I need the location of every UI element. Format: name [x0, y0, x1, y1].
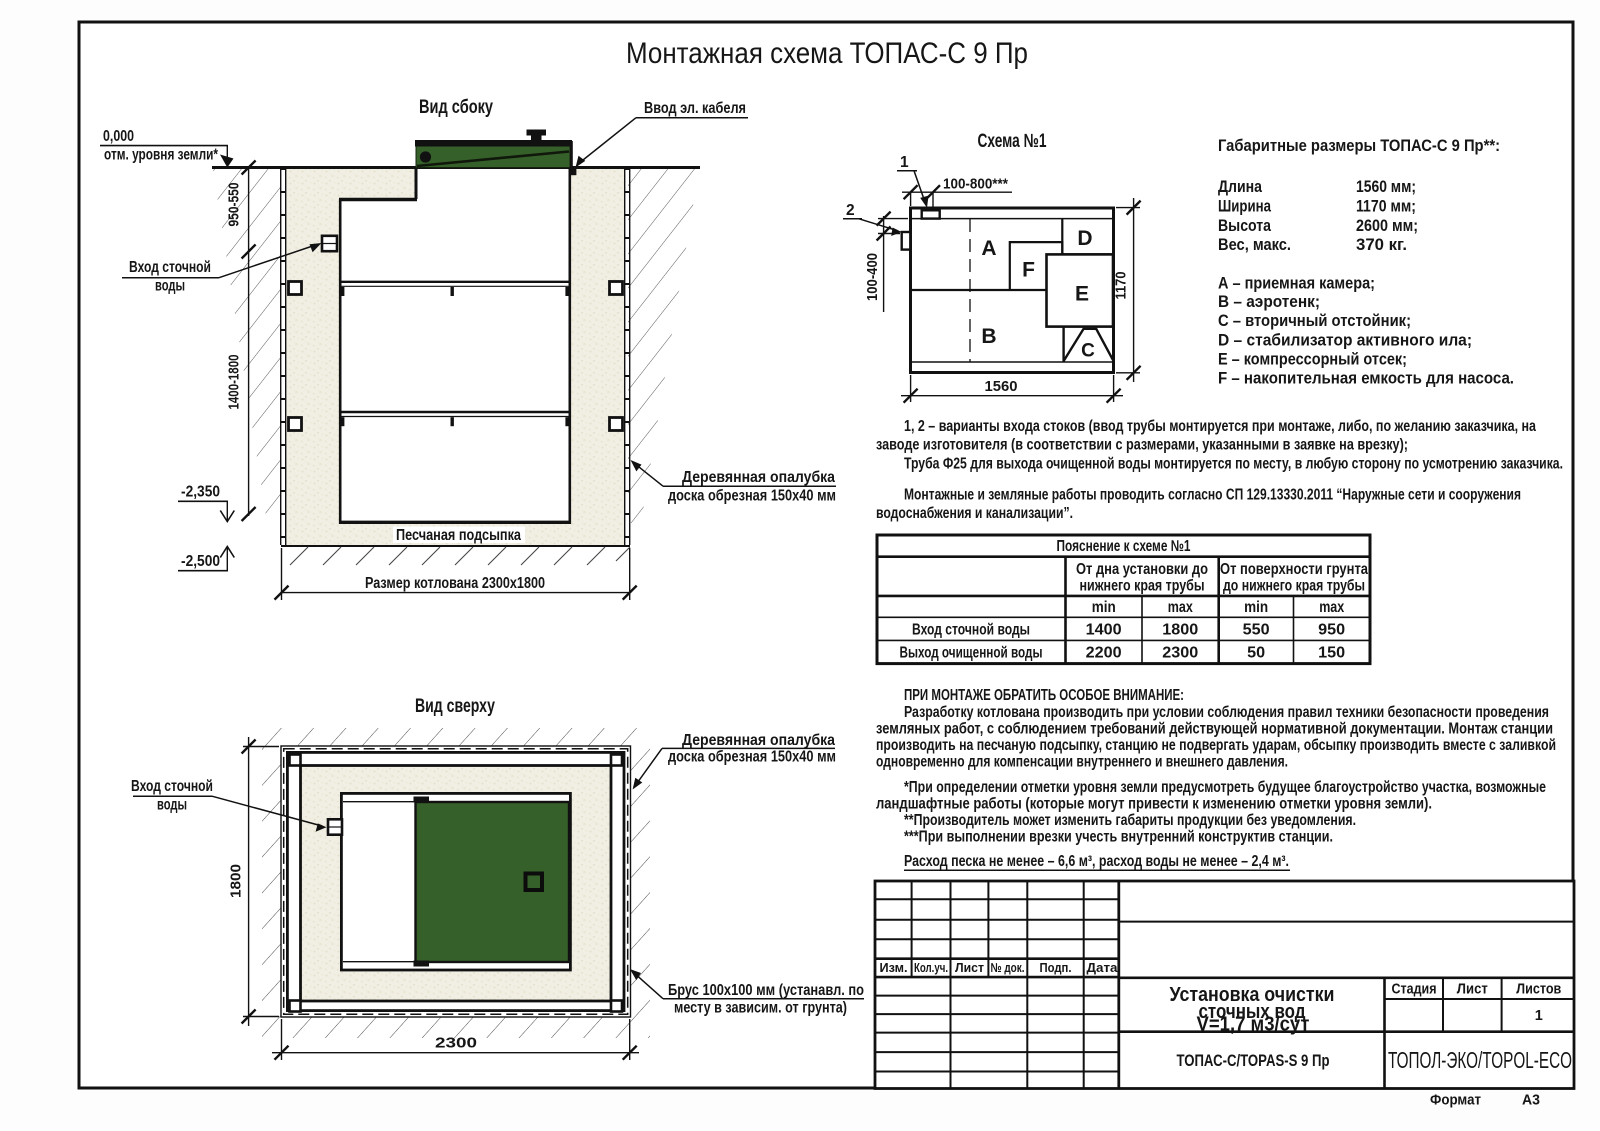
svg-text:доска обрезная 150х40 мм: доска обрезная 150х40 мм: [668, 488, 836, 505]
svg-text:1800: 1800: [1162, 622, 1198, 639]
svg-text:D: D: [1077, 227, 1092, 250]
svg-text:А3: А3: [1522, 1093, 1540, 1109]
svg-text:От поверхности грунта: От поверхности грунта: [1220, 561, 1368, 578]
svg-text:max: max: [1319, 599, 1344, 616]
svg-text:одновременно для компенсации в: одновременно для компенсации внутреннего…: [876, 753, 1288, 770]
svg-text:Габаритные размеры ТОПАС-С 9 П: Габаритные размеры ТОПАС-С 9 Пр**:: [1218, 137, 1500, 155]
svg-text:ТОПАС-С/TOPAS-S 9 Пр: ТОПАС-С/TOPAS-S 9 Пр: [1177, 1052, 1330, 1070]
svg-text:***При выполнении врезки учест: ***При выполнении врезки учесть внутренн…: [904, 828, 1333, 845]
svg-text:Вход сточной воды: Вход сточной воды: [912, 622, 1030, 639]
svg-text:В – аэротенк;: В – аэротенк;: [1218, 293, 1320, 311]
svg-text:1, 2 – варианты входа стоков: 1, 2 – варианты входа стоков (ввод трубы…: [904, 418, 1536, 435]
svg-text:месту в зависим. от грунта): месту в зависим. от грунта): [674, 1000, 847, 1017]
svg-text:2300: 2300: [435, 1036, 477, 1052]
svg-text:min: min: [1244, 599, 1268, 616]
svg-text:2200: 2200: [1086, 645, 1122, 662]
svg-text:Лист: Лист: [1457, 982, 1488, 998]
svg-text:А – приемная камера;: А – приемная камера;: [1218, 275, 1375, 293]
svg-text:**Производитель может изменить: **Производитель может изменить габариты …: [904, 812, 1356, 829]
svg-text:воды: воды: [155, 278, 185, 295]
svg-text:Стадия: Стадия: [1392, 982, 1437, 998]
svg-text:Листов: Листов: [1516, 982, 1561, 998]
svg-text:Подп.: Подп.: [1040, 960, 1072, 975]
svg-text:водоснабжения и канализации”.: водоснабжения и канализации”.: [876, 505, 1073, 522]
svg-text:E: E: [1075, 283, 1089, 306]
svg-text:F – накопительная емкость для: F – накопительная емкость для насоса.: [1218, 370, 1514, 388]
svg-text:100-800***: 100-800***: [943, 177, 1008, 193]
svg-text:ТОПОЛ-ЭКО/TOPOL-ECO: ТОПОЛ-ЭКО/TOPOL-ECO: [1388, 1047, 1572, 1073]
svg-text:Е – компрессорный отсек;: Е – компрессорный отсек;: [1218, 351, 1407, 369]
svg-text:Пояснение к схеме №1: Пояснение к схеме №1: [1057, 538, 1191, 555]
svg-text:0,000: 0,000: [103, 128, 134, 145]
svg-text:1800: 1800: [229, 864, 245, 898]
svg-text:D – стабилизатор активного ила: D – стабилизатор активного ила;: [1218, 332, 1472, 350]
svg-text:Расход песка не менее – 6,6 м³: Расход песка не менее – 6,6 м³, расход в…: [904, 853, 1289, 870]
svg-text:Вход сточной: Вход сточной: [129, 259, 211, 276]
svg-text:Вес, макс.: Вес, макс.: [1218, 236, 1291, 254]
svg-text:370 кг.: 370 кг.: [1356, 236, 1407, 254]
svg-text:Вид сбоку: Вид сбоку: [419, 97, 493, 118]
svg-text:950: 950: [1318, 622, 1345, 639]
svg-text:Ввод эл. кабеля: Ввод эл. кабеля: [644, 100, 746, 117]
svg-text:Деревянная опалубка: Деревянная опалубка: [682, 732, 835, 749]
svg-text:V=1,7 м3/сут: V=1,7 м3/сут: [1197, 1014, 1310, 1036]
svg-text:Размер котлована 2300х1800: Размер котлована 2300х1800: [365, 575, 545, 592]
svg-text:Разработку котлована производи: Разработку котлована производить при усл…: [904, 704, 1549, 721]
svg-text:50: 50: [1247, 645, 1265, 662]
svg-text:заводе изготовителя (в соответ: заводе изготовителя (в соответствии с ра…: [876, 437, 1408, 454]
svg-text:Вход сточной: Вход сточной: [131, 778, 213, 795]
svg-text:1170: 1170: [1114, 272, 1130, 300]
svg-text:ландшафтные работы (которые мо: ландшафтные работы (которые могут привес…: [876, 796, 1432, 813]
svg-text:№ док.: № док.: [991, 960, 1025, 975]
svg-text:Дата: Дата: [1087, 960, 1119, 975]
svg-text:1560 мм;: 1560 мм;: [1356, 178, 1416, 196]
svg-text:Монтажная схема ТОПАС-С 9 Пр: Монтажная схема ТОПАС-С 9 Пр: [626, 37, 1028, 70]
svg-text:2600 мм;: 2600 мм;: [1356, 217, 1418, 235]
svg-text:150: 150: [1318, 645, 1345, 662]
svg-text:отм. уровня земли*: отм. уровня земли*: [104, 147, 219, 164]
svg-text:F: F: [1022, 259, 1035, 282]
svg-text:ПРИ МОНТАЖЕ ОБРАТИТЬ ОСОБОЕ ВН: ПРИ МОНТАЖЕ ОБРАТИТЬ ОСОБОЕ ВНИМАНИЕ:: [904, 687, 1184, 704]
svg-text:2300: 2300: [1162, 645, 1198, 662]
svg-text:550: 550: [1243, 622, 1270, 639]
svg-text:Схема №1: Схема №1: [978, 131, 1047, 152]
svg-text:*При определении отметки уровн: *При определении отметки уровня земли пр…: [904, 779, 1546, 796]
svg-text:max: max: [1168, 599, 1193, 616]
svg-text:950-550: 950-550: [227, 183, 243, 227]
svg-text:до нижнего края трубы: до нижнего края трубы: [1223, 578, 1365, 595]
svg-text:Брус 100х100 мм (устанавл. по: Брус 100х100 мм (устанавл. по: [668, 982, 864, 999]
svg-text:земляных работ, с соблюдением: земляных работ, с соблюдением требований…: [876, 721, 1553, 738]
svg-text:Песчаная подсыпка: Песчаная подсыпка: [396, 527, 521, 544]
svg-text:2: 2: [846, 202, 855, 219]
svg-text:Длина: Длина: [1218, 178, 1263, 196]
svg-text:Лист: Лист: [955, 960, 984, 975]
svg-text:Монтажные и земляные работы пр: Монтажные и земляные работы проводить со…: [904, 487, 1521, 504]
svg-text:Формат: Формат: [1430, 1093, 1481, 1109]
svg-text:От дна установки до: От дна установки до: [1076, 561, 1208, 578]
svg-text:С – вторичный отстойник;: С – вторичный отстойник;: [1218, 312, 1411, 330]
svg-text:B: B: [981, 325, 996, 348]
svg-text:Вид сверху: Вид сверху: [415, 696, 495, 717]
svg-text:нижнего края трубы: нижнего края трубы: [1080, 578, 1205, 595]
svg-text:Кол.уч.: Кол.уч.: [914, 960, 948, 975]
svg-text:Изм.: Изм.: [880, 960, 908, 975]
svg-text:C: C: [1081, 341, 1095, 362]
svg-text:1560: 1560: [985, 379, 1018, 395]
svg-text:Высота: Высота: [1218, 217, 1272, 235]
svg-text:-2,500: -2,500: [181, 553, 220, 570]
svg-text:1: 1: [1535, 1008, 1543, 1024]
svg-text:Деревянная опалубка: Деревянная опалубка: [682, 469, 835, 486]
svg-text:1400-1800: 1400-1800: [227, 355, 243, 410]
svg-text:1400: 1400: [1086, 622, 1122, 639]
svg-text:производить на песчаную подсып: производить на песчаную подсыпку, станци…: [876, 737, 1556, 754]
svg-text:воды: воды: [157, 797, 187, 814]
svg-text:Труба Ф25 для выхода очищенной: Труба Ф25 для выхода очищенной воды монт…: [904, 455, 1563, 472]
svg-text:min: min: [1092, 599, 1116, 616]
svg-text:Выход очищенной воды: Выход очищенной воды: [900, 645, 1043, 662]
svg-text:-2,350: -2,350: [181, 484, 220, 501]
svg-text:100-400: 100-400: [865, 253, 881, 301]
svg-text:доска обрезная 150х40 мм: доска обрезная 150х40 мм: [668, 749, 836, 766]
svg-text:A: A: [981, 237, 996, 260]
svg-text:1: 1: [900, 154, 909, 171]
svg-text:Ширина: Ширина: [1218, 198, 1272, 216]
svg-text:1170 мм;: 1170 мм;: [1356, 198, 1416, 216]
